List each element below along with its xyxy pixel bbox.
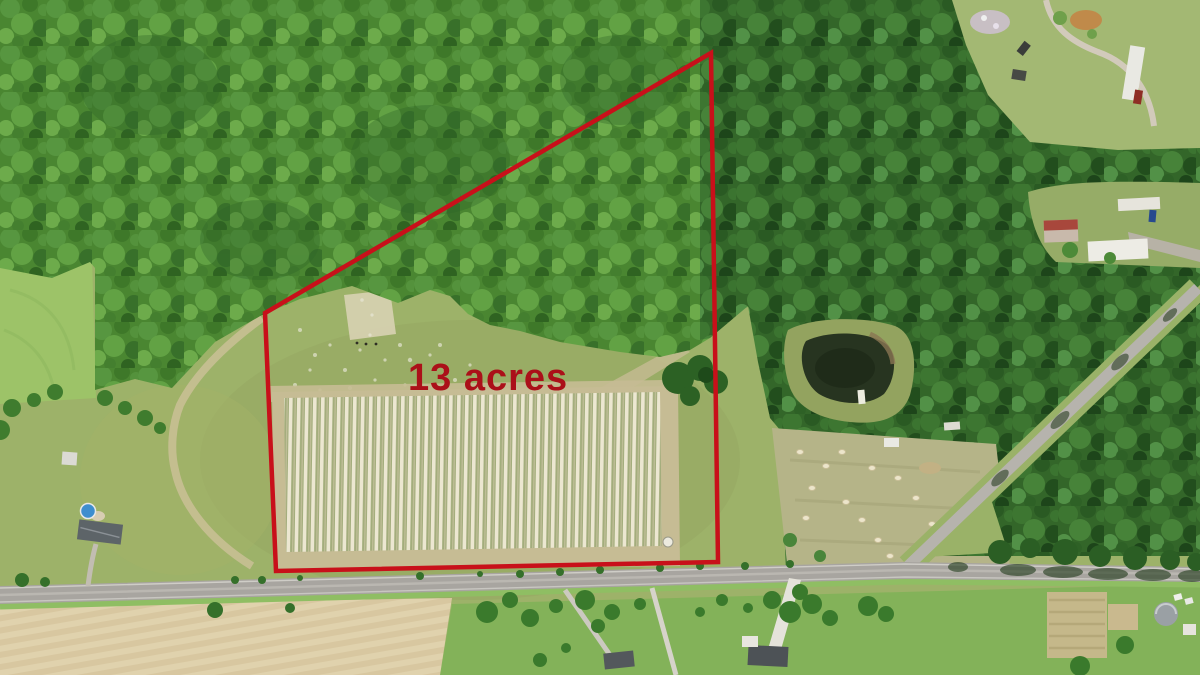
white-camper (944, 421, 961, 430)
garage-white (742, 636, 758, 647)
clearing-homestead (1028, 182, 1200, 268)
farmhouse-red-roof (1044, 219, 1078, 230)
white-tarp (884, 438, 899, 447)
blue-vehicle (1148, 210, 1156, 223)
swimming-pool (81, 504, 96, 519)
acreage-label: 13 acres (408, 357, 568, 399)
planted-rows (284, 392, 662, 552)
aerial-photo-canvas: 13 acres (0, 0, 1200, 675)
plowed-field (0, 598, 452, 675)
debris-pile (970, 10, 1010, 34)
house-roof-2 (748, 645, 789, 667)
garden-plot (1108, 604, 1138, 630)
pasture-field (0, 258, 96, 404)
white-shed-2 (1183, 624, 1196, 635)
white-building (1088, 238, 1149, 261)
white-shed (62, 452, 78, 466)
water-tank (663, 537, 673, 547)
aerial-photo: 13 acres (0, 0, 1200, 675)
house-roof-1 (603, 650, 635, 669)
white-trailer (1118, 197, 1161, 211)
white-post (857, 390, 865, 405)
round-roof-house (1154, 602, 1178, 626)
bare-dirt-patch (1070, 10, 1102, 30)
